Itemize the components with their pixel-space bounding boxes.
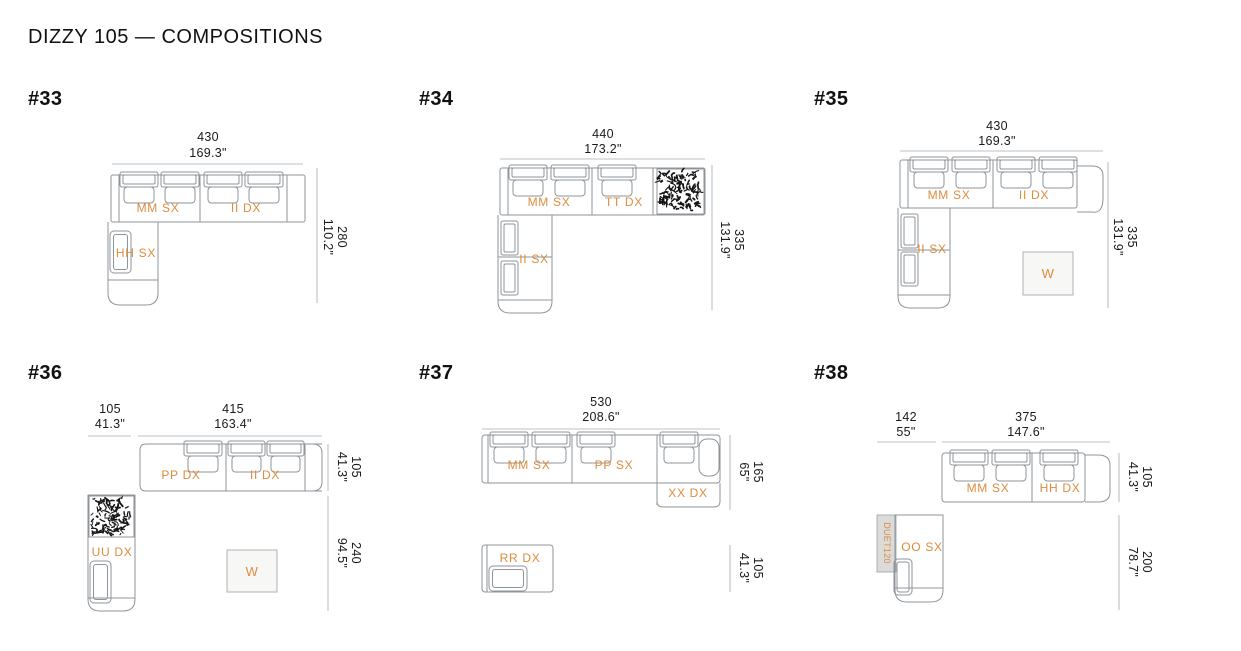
right-arm — [305, 444, 322, 491]
composition-sheet: DIZZY 105 — COMPOSITIONS #33 #34 #35 #36… — [0, 0, 1241, 651]
seat-cushion — [161, 172, 199, 203]
seat-cushion — [952, 157, 990, 188]
module-label: HH DX — [1040, 481, 1081, 495]
module-label: MM SX — [528, 195, 571, 209]
module-label: MM SX — [508, 458, 551, 472]
chaise-module: II SX — [898, 208, 950, 308]
module-label: XX DX — [668, 486, 708, 500]
dim-mm: 142 — [895, 410, 917, 424]
dim-mm: 335 — [732, 229, 746, 251]
dimension-right: 335 131.9" — [1108, 162, 1139, 308]
dimension-top: 440 173.2" — [500, 127, 705, 159]
seat-cushion — [598, 165, 636, 196]
module-label: II SX — [917, 242, 947, 256]
dim-inch: 169.3" — [978, 134, 1016, 148]
seat-cushion — [910, 157, 948, 188]
ottoman: W — [227, 550, 277, 592]
arm-cushion — [489, 566, 527, 591]
module-label: OO SX — [901, 540, 943, 554]
chaise-module: UU DX — [88, 495, 135, 611]
duet-strip-label: DUET120 — [882, 522, 892, 564]
right-arm — [699, 439, 719, 476]
module-label: UU DX — [92, 545, 133, 559]
composition-36-heading: #36 — [28, 362, 62, 385]
ottoman: W — [1023, 252, 1073, 295]
dim-mm: 440 — [592, 127, 614, 141]
dim-inch: 41.3" — [335, 452, 349, 482]
module-label: II DX — [231, 201, 261, 215]
dim-inch: 131.9" — [1111, 218, 1125, 256]
seat-cushion — [509, 165, 547, 196]
dim-mm: 105 — [99, 402, 121, 416]
dim-mm: 240 — [349, 542, 363, 564]
composition-38-heading: #38 — [814, 362, 848, 385]
dim-inch: 173.2" — [584, 142, 622, 156]
module-label: II SX — [519, 252, 549, 266]
module-label: MM SX — [967, 481, 1010, 495]
composition-33-heading: #33 — [28, 88, 62, 111]
dimension-top: 430 169.3" — [112, 130, 303, 164]
dim-mm: 165 — [751, 461, 765, 483]
module-label: HH SX — [116, 246, 156, 260]
seat-cushion — [120, 172, 158, 203]
back-pillow — [901, 214, 918, 248]
sofa-body: MM SX II DX — [900, 157, 1103, 212]
dim-inch: 94.5" — [335, 538, 349, 568]
module-label: PP DX — [161, 468, 200, 482]
page-title: DIZZY 105 — COMPOSITIONS — [28, 26, 323, 49]
dim-mm: 105 — [751, 557, 765, 579]
composition-35-heading: #35 — [814, 88, 848, 111]
seat-cushion — [204, 172, 242, 203]
ottoman-label: W — [1042, 266, 1055, 281]
back-pillow — [501, 221, 518, 255]
seat-cushion — [1040, 450, 1078, 481]
dimension-top: 105 41.3" 415 163.4" — [88, 402, 322, 436]
module-label: TT DX — [605, 195, 643, 209]
sofa-body: PP DX II DX — [140, 441, 322, 491]
dim-mm: 105 — [349, 456, 363, 478]
dimension-right: 105 41.3" 200 78.7" — [1119, 453, 1154, 610]
seat-cushion — [660, 432, 698, 463]
dimension-top: 430 169.3" — [900, 119, 1103, 151]
dim-inch: 163.4" — [214, 417, 252, 431]
dim-mm: 430 — [986, 119, 1008, 133]
right-arm — [1085, 455, 1110, 502]
chaise-module: II SX — [498, 215, 552, 313]
dim-mm: 200 — [1140, 551, 1154, 573]
dim-mm: 375 — [1015, 410, 1037, 424]
sofa-body: MM SX PP SX XX DX — [482, 432, 720, 507]
arm-cushion — [90, 561, 111, 603]
dim-inch: 41.3" — [1126, 462, 1140, 492]
composition-38-diagram: 142 55" 375 147.6" 105 41.3" 200 78.7" M… — [850, 390, 1170, 625]
module-label: RR DX — [500, 551, 541, 565]
arm-cushion — [894, 559, 912, 595]
dim-mm: 415 — [222, 402, 244, 416]
composition-36-diagram: 105 41.3" 415 163.4" 105 41.3" 240 94.5"… — [60, 390, 380, 625]
seat-cushion — [992, 450, 1030, 481]
back-pillow — [901, 252, 918, 286]
dim-mm: 105 — [1140, 466, 1154, 488]
dimension-top: 142 55" 375 147.6" — [877, 410, 1110, 442]
module-label: MM SX — [137, 201, 180, 215]
sofa-body: MM SX TT DX — [500, 165, 705, 215]
composition-34-heading: #34 — [419, 88, 453, 111]
seat-cushion — [245, 172, 283, 203]
sofa-body: MM SX HH DX — [942, 450, 1110, 502]
seat-cushion — [997, 157, 1035, 188]
composition-37-diagram: 530 208.6" 165 65" 105 41.3" MM SX PP SX — [450, 390, 790, 625]
dim-inch: 65" — [737, 462, 751, 481]
bench-module: RR DX — [482, 545, 553, 592]
dim-inch: 147.6" — [1007, 425, 1045, 439]
chaise-module: DUET120 OO SX — [877, 515, 943, 602]
module-label: II DX — [250, 468, 280, 482]
seat-cushion — [1039, 157, 1077, 188]
dim-inch: 78.7" — [1126, 547, 1140, 577]
dim-inch: 169.3" — [189, 146, 227, 160]
table-surface-texture — [91, 496, 131, 536]
dimension-right: 280 110.2" — [317, 168, 349, 303]
dim-inch: 131.9" — [718, 221, 732, 259]
ottoman-label: W — [246, 564, 259, 579]
seat-cushion — [551, 165, 589, 196]
dimension-right: 165 65" 105 41.3" — [730, 435, 765, 592]
dimension-right: 335 131.9" — [712, 165, 746, 310]
dim-inch: 55" — [896, 425, 915, 439]
right-arm — [1077, 166, 1103, 212]
chaise-module: HH SX — [108, 222, 158, 305]
dim-inch: 41.3" — [737, 553, 751, 583]
dimension-right: 105 41.3" 240 94.5" — [328, 444, 363, 611]
composition-37-heading: #37 — [419, 362, 453, 385]
dimension-top: 530 208.6" — [482, 395, 720, 429]
composition-33-diagram: 430 169.3" 280 110.2" MM SX II DX HH SX — [80, 120, 370, 320]
dim-inch: 110.2" — [321, 219, 335, 256]
seat-cushion — [950, 450, 988, 481]
module-label: MM SX — [928, 188, 971, 202]
sofa-body: MM SX II DX — [111, 172, 305, 222]
dim-mm: 430 — [197, 130, 219, 144]
module-label: II DX — [1019, 188, 1049, 202]
dim-inch: 208.6" — [582, 410, 620, 424]
dim-mm: 530 — [590, 395, 612, 409]
module-label: PP SX — [595, 458, 634, 472]
table-surface-texture — [655, 168, 703, 210]
dim-inch: 41.3" — [95, 417, 125, 431]
dim-mm: 280 — [335, 226, 349, 248]
composition-35-diagram: 430 169.3" 335 131.9" MM SX II DX — [860, 116, 1160, 320]
back-pillow — [501, 261, 518, 295]
composition-34-diagram: 440 173.2" 335 131.9" MM SX TT DX — [470, 118, 790, 320]
dim-mm: 335 — [1125, 226, 1139, 248]
